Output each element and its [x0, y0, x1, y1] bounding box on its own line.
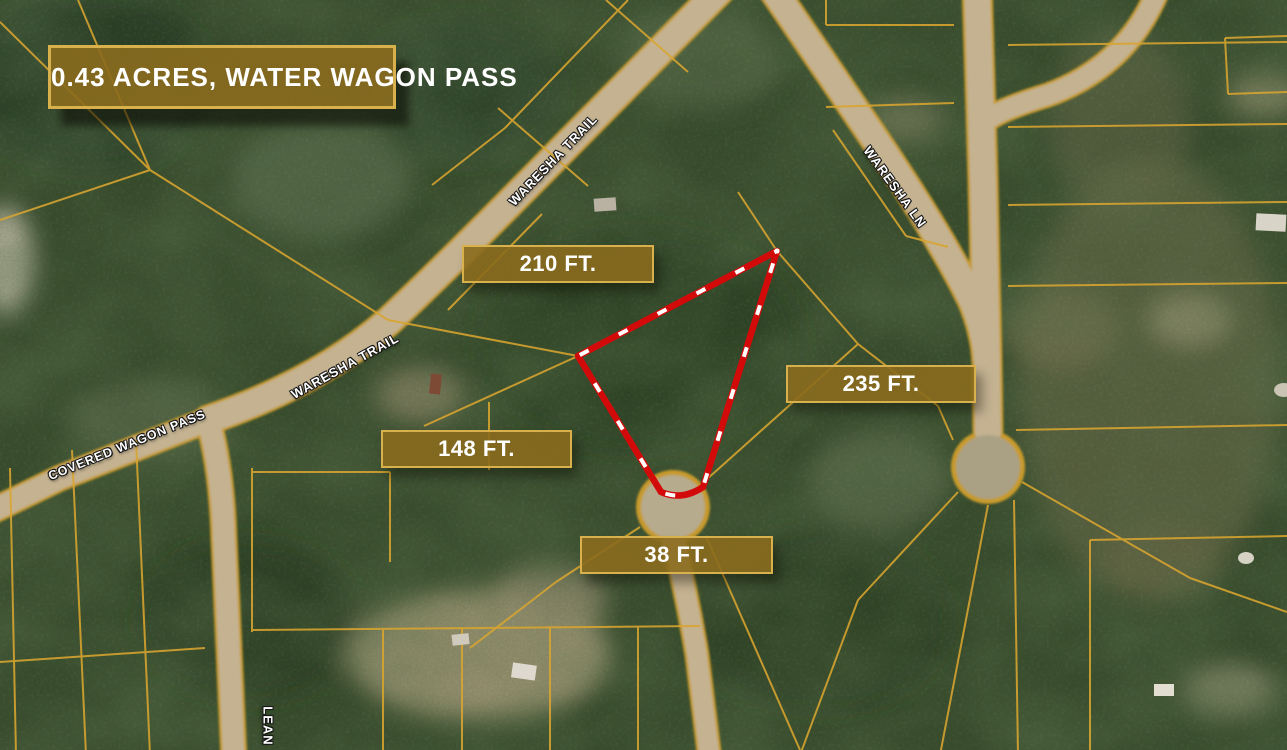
measurement-badge-148ft: 148 FT.	[381, 430, 572, 468]
measurement-badge-38ft: 38 FT.	[580, 536, 773, 574]
forest-grain-light	[0, 0, 1287, 750]
title-badge: 0.43 ACRES, WATER WAGON PASS	[48, 45, 396, 109]
satellite-parcel-map: WARESHA TRAIL WARESHA TRAIL WARESHA LN C…	[0, 0, 1287, 750]
lot-corner-dot	[774, 248, 779, 253]
measurement-badge-210ft: 210 FT.	[462, 245, 654, 283]
street-label-lean-partial: LEAN	[261, 706, 276, 745]
map-canvas	[0, 0, 1287, 750]
measurement-badge-235ft: 235 FT.	[786, 365, 976, 403]
